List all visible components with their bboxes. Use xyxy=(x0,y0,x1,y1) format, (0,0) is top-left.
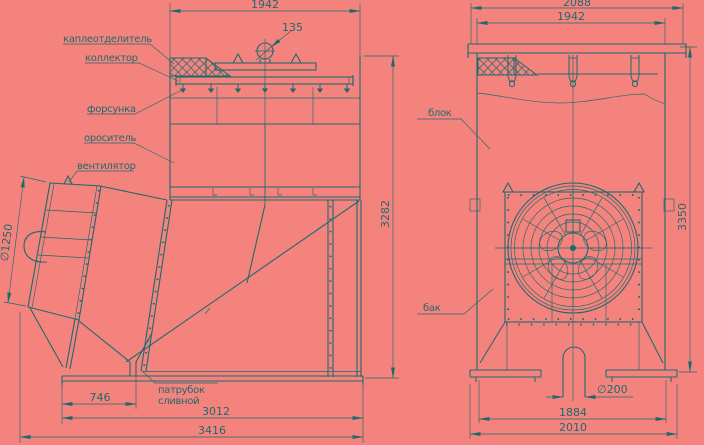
dim-right-support-span: 1884 xyxy=(479,380,666,423)
left-view-drawing xyxy=(24,3,363,385)
right-view-drawing xyxy=(468,44,686,401)
dim-left-top-width: 1942 xyxy=(170,0,360,11)
duct-top-edge xyxy=(100,186,167,200)
dim-text-drain-diameter: ∅200 xyxy=(597,383,628,396)
dim-fan-diameter: ∅1250 xyxy=(0,176,46,306)
label-text-fan: вентилятор xyxy=(77,161,136,172)
dim-text-left-base-width: 3012 xyxy=(202,405,230,418)
dim-text-pipe-diameter: 135 xyxy=(282,21,303,34)
dim-drain-diameter: ∅200 xyxy=(546,383,633,397)
label-text-block: блок xyxy=(428,108,452,119)
dim-text-fan-diameter: ∅1250 xyxy=(0,223,15,262)
dim-left-height: 3282 xyxy=(364,56,399,378)
label-tank: бак xyxy=(417,289,493,314)
tank-skirt-and-feet xyxy=(470,322,677,401)
nozzle-row xyxy=(180,84,350,93)
callout-labels: каплеотделитель коллектор форсунка ороси… xyxy=(63,34,493,407)
label-collector: коллектор xyxy=(85,53,178,81)
label-text-droplet-separator: каплеотделитель xyxy=(63,34,152,45)
cooling-tower-technical-drawing: 1942 135 3282 ∅1250 746 3012 xyxy=(0,0,704,445)
label-text-nozzle: форсунка xyxy=(87,104,136,115)
dim-text-left-height: 3282 xyxy=(379,200,392,228)
base-frame xyxy=(62,376,363,385)
tank-assembly xyxy=(79,200,361,377)
drain-pipe xyxy=(563,347,585,401)
dim-text-left-overall-width: 3416 xyxy=(198,424,226,437)
label-text-sprinkler: ороситель xyxy=(84,133,137,144)
label-block: блок xyxy=(417,108,490,149)
label-sprinkler: ороситель xyxy=(84,133,174,163)
dim-text-right-cap-width: 2088 xyxy=(563,0,591,9)
dim-text-right-body-width: 1942 xyxy=(557,10,585,23)
label-text-drain-pipe-1: патрубок xyxy=(158,385,205,396)
tank-diagonal-brace xyxy=(126,201,359,362)
fan-inlet-bell xyxy=(24,232,47,262)
dim-text-drain-offset: 746 xyxy=(90,391,111,404)
fan-grille-panel xyxy=(495,183,652,325)
label-text-drain-pipe-2: сливной xyxy=(158,396,199,407)
dim-text-right-support-span: 1884 xyxy=(559,406,587,419)
dim-right-height: 3350 xyxy=(676,47,697,372)
dim-text-left-top-width: 1942 xyxy=(251,0,279,11)
spray-boundary-line xyxy=(477,93,665,104)
dim-left-overall-width: 3416 xyxy=(20,312,363,443)
label-text-collector: коллектор xyxy=(85,53,138,64)
dim-text-right-base-width: 2010 xyxy=(559,421,587,434)
label-text-tank: бак xyxy=(423,303,441,314)
label-fan: вентилятор xyxy=(69,161,136,182)
dim-right-body-width: 1942 xyxy=(477,10,665,44)
dim-text-right-height: 3350 xyxy=(676,203,689,231)
droplet-separator-hatch xyxy=(170,58,230,76)
